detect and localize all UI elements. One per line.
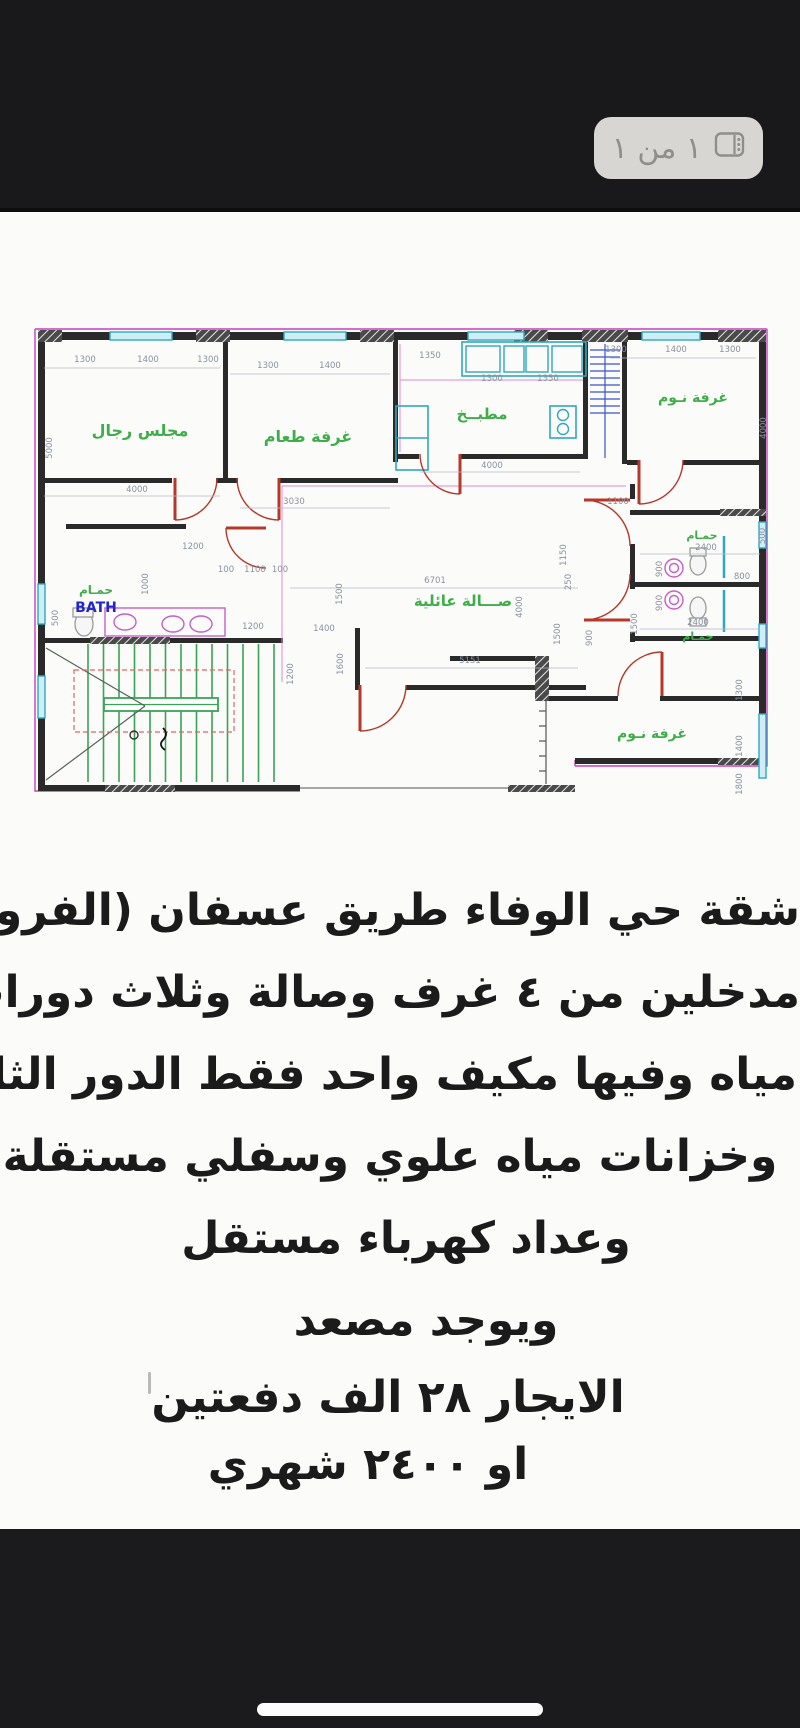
dimension-label: 900 — [585, 630, 595, 646]
room-label: غرفة طعام — [264, 427, 352, 446]
dimension-label: 1300 — [605, 345, 627, 355]
dimension-label: 900 — [655, 561, 665, 577]
vent-shaft — [590, 344, 620, 458]
top-bar-divider — [0, 208, 800, 212]
dimension-label: 1300 — [257, 361, 279, 371]
ad-text-line: مياه وفيها مكيف واحد فقط الدور الثالث — [0, 1051, 797, 1099]
dimension-label: 1600 — [336, 653, 346, 675]
dimension-label: 1400 — [319, 361, 341, 371]
ad-text-line: شقة حي الوفاء طريق عسفان (الفروسية) — [0, 887, 800, 935]
room-label: صـــالة عائلية — [414, 592, 512, 610]
dimension-label: 1350 — [419, 351, 441, 361]
room-label: مجلس رجال — [92, 421, 189, 440]
dimension-label: 250 — [564, 574, 574, 590]
dimension-label: 1200 — [286, 663, 296, 685]
dimension-label: 1500 — [335, 583, 345, 605]
dimension-label: 4000 — [759, 417, 769, 439]
dimension-label: 500 — [51, 610, 61, 626]
room-label: غرفة نـوم — [658, 390, 728, 406]
dimension-label: 4000 — [515, 596, 525, 618]
dimension-label: 1300 — [481, 374, 503, 384]
dimension-label: 1500 — [553, 623, 563, 645]
pages-icon — [714, 131, 745, 166]
room-label: حمـام — [682, 630, 713, 643]
dimension-label: 1350 — [537, 374, 559, 384]
bottom-bar — [0, 1529, 800, 1728]
dimension-label: 1500 — [630, 613, 640, 635]
dimension-label: 1150 — [559, 544, 569, 566]
room-label: مطبــخ — [456, 405, 507, 423]
dimension-label: 5151 — [459, 656, 481, 666]
dimension-label: 1300 — [74, 355, 96, 365]
room-label: حمـام — [686, 529, 717, 542]
room-label: حمـام — [79, 583, 113, 598]
ad-text-line: مدخلين من ٤ غرف وصالة وثلاث دورات — [0, 969, 800, 1017]
dimension-label: 1400 — [665, 345, 687, 355]
dimension-label: 1400 — [137, 355, 159, 365]
stray-mark — [148, 1372, 151, 1394]
ad-text-line: ويوجد مصعد — [26, 1297, 800, 1345]
dimension-label: 3030 — [283, 497, 305, 507]
page-indicator-label: ١ من ١ — [612, 131, 702, 166]
dimension-label: 1200 — [242, 622, 264, 632]
ad-text-line: وعداد كهرباء مستقل — [6, 1215, 800, 1263]
floor-plan-image: مجلس رجالغرفة طعاممطبــخغرفة نـومصـــالة… — [30, 288, 770, 803]
photo-viewer-screen: ١ من ١ — [0, 0, 800, 1728]
dimension-label: 2400 — [695, 543, 717, 553]
dimension-label: 800 — [734, 572, 750, 582]
dimension-label: 1300 — [719, 345, 741, 355]
dimension-label: 500 — [758, 528, 768, 544]
page-indicator-badge[interactable]: ١ من ١ — [594, 117, 763, 179]
ad-text-line: الايجار ٢٨ الف دفعتين — [0, 1374, 788, 1422]
dimension-label: 1000 — [141, 573, 151, 595]
dimension-label: 1200 — [182, 542, 204, 552]
bath-english-label: BATH — [75, 600, 117, 616]
dimension-label: 4000 — [481, 461, 503, 471]
top-bar — [0, 0, 800, 211]
dimension-label: 900 — [655, 595, 665, 611]
room-label: غرفة نـوم — [617, 726, 687, 742]
dimension-label: 1100 — [607, 497, 629, 507]
ad-text-line: وخزانات مياه علوي وسفلي مستقلة — [0, 1133, 790, 1181]
staircase — [46, 644, 274, 782]
dimension-label: 1300 — [197, 355, 219, 365]
ad-text-line: او ٢٤٠٠ شهري — [0, 1441, 768, 1489]
dimension-label: 2400 — [687, 618, 709, 628]
dimension-label: 1800 — [735, 773, 745, 795]
home-indicator[interactable] — [257, 1703, 543, 1716]
dimension-label: 100 — [272, 565, 288, 575]
floor-plan-svg: مجلس رجالغرفة طعاممطبــخغرفة نـومصـــالة… — [30, 288, 770, 803]
dimension-label: 1300 — [735, 679, 745, 701]
dimension-label: 1400 — [735, 735, 745, 757]
dimension-label: 6701 — [424, 576, 446, 586]
dimension-label: 1400 — [313, 624, 335, 634]
dimension-label: 5000 — [45, 437, 55, 459]
dimension-label: 100 — [218, 565, 234, 575]
dimension-label: 4000 — [126, 485, 148, 495]
dimension-label: 1100 — [244, 565, 266, 575]
